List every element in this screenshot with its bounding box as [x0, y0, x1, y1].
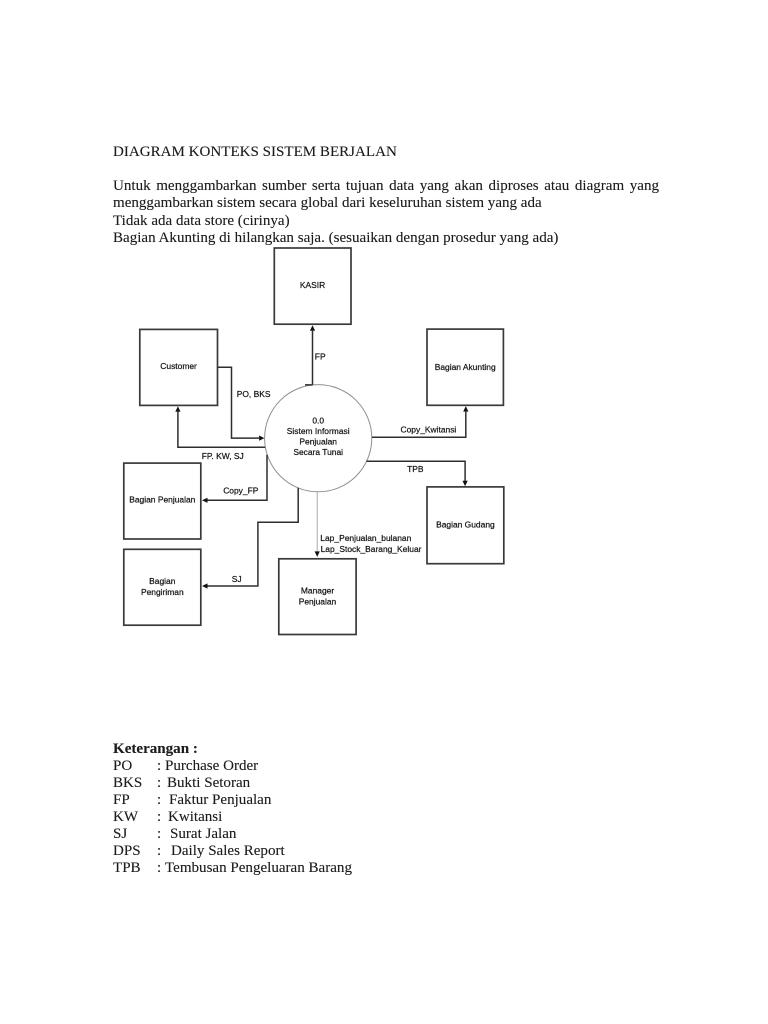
svg-text:Customer: Customer	[160, 361, 197, 371]
svg-text:KASIR: KASIR	[300, 280, 325, 290]
svg-text:Bagian: Bagian	[149, 576, 176, 586]
svg-text:Copy_FP: Copy_FP	[223, 485, 259, 495]
svg-text:TPB: TPB	[407, 464, 424, 474]
svg-text:Penjualan: Penjualan	[299, 596, 337, 606]
svg-text:Sistem Informasi: Sistem Informasi	[287, 426, 350, 436]
svg-text:Lap_Stock_Barang_Keluar: Lap_Stock_Barang_Keluar	[321, 544, 422, 554]
svg-text:0.0: 0.0	[312, 415, 324, 425]
svg-text:Bagian Akunting: Bagian Akunting	[435, 362, 496, 372]
svg-text:Bagian Gudang: Bagian Gudang	[436, 519, 495, 529]
svg-text:PO, BKS: PO, BKS	[237, 389, 271, 399]
svg-text:Bagian Penjualan: Bagian Penjualan	[129, 495, 195, 505]
svg-text:SJ: SJ	[232, 574, 242, 584]
svg-text:Pengiriman: Pengiriman	[141, 587, 184, 597]
svg-text:Penjualan: Penjualan	[299, 437, 337, 447]
svg-text:Lap_Penjualan_bulanan: Lap_Penjualan_bulanan	[320, 533, 411, 543]
svg-text:FP: FP	[315, 352, 326, 362]
svg-text:Manager: Manager	[301, 586, 334, 596]
svg-text:FP. KW, SJ: FP. KW, SJ	[202, 451, 244, 461]
svg-text:Copy_Kwitansi: Copy_Kwitansi	[401, 424, 457, 434]
svg-text:Secara Tunai: Secara Tunai	[293, 447, 343, 457]
